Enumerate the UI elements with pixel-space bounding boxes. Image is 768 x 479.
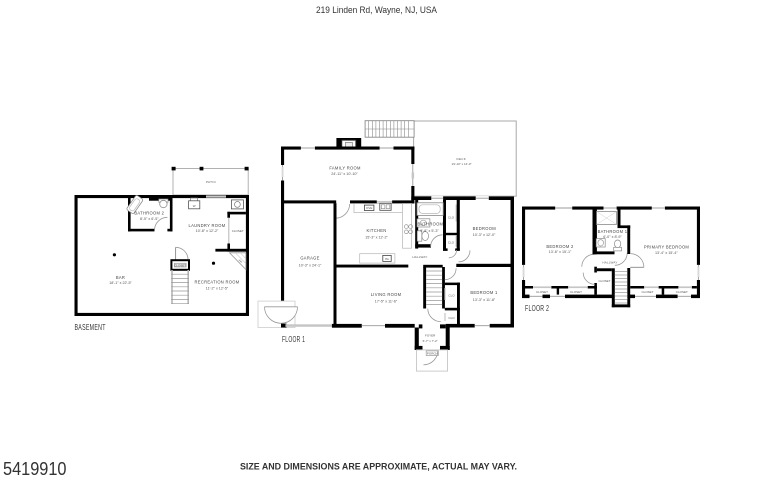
svg-text:DECK: DECK <box>457 157 467 161</box>
svg-text:BATHROOM: BATHROOM <box>418 222 444 227</box>
svg-text:CLOSET: CLOSET <box>598 279 610 283</box>
svg-text:BASEMENT: BASEMENT <box>75 322 106 332</box>
svg-text:HALLWAY: HALLWAY <box>602 260 617 264</box>
svg-text:RECREATION ROOM: RECREATION ROOM <box>195 280 240 285</box>
svg-text:PATIO: PATIO <box>206 180 216 184</box>
svg-text:FAMILY ROOM: FAMILY ROOM <box>329 166 361 171</box>
svg-text:KITCHEN: KITCHEN <box>366 228 386 233</box>
svg-text:BAR: BAR <box>116 275 125 280</box>
svg-text:CLOSET: CLOSET <box>676 290 688 294</box>
svg-text:11'-2" x 12'-5": 11'-2" x 12'-5" <box>206 287 229 291</box>
svg-text:CLO: CLO <box>448 215 455 219</box>
svg-text:10'-8" x 12'-2": 10'-8" x 12'-2" <box>196 229 219 233</box>
svg-text:CLOSET: CLOSET <box>232 229 244 233</box>
svg-text:17'-5" x 11'-6": 17'-5" x 11'-6" <box>375 299 398 303</box>
svg-text:13'-3" x 11'-8": 13'-3" x 11'-8" <box>473 298 496 302</box>
svg-text:10'-3" x 24'-1": 10'-3" x 24'-1" <box>299 263 322 267</box>
svg-text:6'-0" x 8'-9": 6'-0" x 8'-9" <box>603 235 622 239</box>
svg-text:FLOOR 2: FLOOR 2 <box>525 303 549 313</box>
svg-text:15'-3" x 12'-2": 15'-3" x 12'-2" <box>365 236 388 240</box>
svg-text:13'-6" x 15'-1": 13'-6" x 15'-1" <box>549 250 572 254</box>
svg-text:LIVING ROOM: LIVING ROOM <box>371 292 402 297</box>
svg-text:HALLWAY: HALLWAY <box>412 255 427 259</box>
svg-text:CLOSET: CLOSET <box>570 290 582 294</box>
svg-text:CLOSET: CLOSET <box>641 290 653 294</box>
svg-text:19'-10" x 14'-0": 19'-10" x 14'-0" <box>452 162 472 166</box>
svg-text:BATHROOM 2: BATHROOM 2 <box>134 211 164 216</box>
svg-text:ISL: ISL <box>385 257 390 261</box>
svg-text:LAUNDRY ROOM: LAUNDRY ROOM <box>189 223 226 228</box>
svg-text:10'-3" x 12'-0": 10'-3" x 12'-0" <box>473 233 496 237</box>
svg-text:SIZE AND DIMENSIONS ARE APPROX: SIZE AND DIMENSIONS ARE APPROXIMATE, ACT… <box>240 462 517 472</box>
svg-text:CLO: CLO <box>448 294 455 298</box>
svg-text:GARAGE: GARAGE <box>300 256 319 261</box>
svg-text:5419910: 5419910 <box>3 458 67 479</box>
svg-text:W: W <box>193 204 196 208</box>
svg-text:9'-8" x 5'-3": 9'-8" x 5'-3" <box>420 229 439 233</box>
svg-text:CLOSET: CLOSET <box>536 290 548 294</box>
svg-text:CLOSET: CLOSET <box>174 263 186 267</box>
svg-text:13'-4" x 15'-4": 13'-4" x 15'-4" <box>655 251 678 255</box>
svg-text:18'-1" x 22'-5": 18'-1" x 22'-5" <box>109 281 132 285</box>
svg-text:BEDROOM 2: BEDROOM 2 <box>546 244 574 249</box>
svg-text:BATHROOM 1: BATHROOM 1 <box>598 229 628 234</box>
svg-text:24'-11" x 10'-10": 24'-11" x 10'-10" <box>331 172 358 176</box>
svg-text:FLOOR 1: FLOOR 1 <box>282 334 305 344</box>
svg-text:CLO: CLO <box>448 240 455 244</box>
svg-text:OVE: OVE <box>366 206 372 210</box>
svg-text:BEDROOM: BEDROOM <box>473 226 497 231</box>
svg-text:PRIMARY BEDROOM: PRIMARY BEDROOM <box>644 245 690 250</box>
svg-text:8'-5" x 6'-5": 8'-5" x 6'-5" <box>140 217 159 221</box>
svg-text:PORCH: PORCH <box>427 352 438 356</box>
svg-text:CLO: CLO <box>448 316 455 320</box>
svg-text:FOYER: FOYER <box>425 334 436 338</box>
svg-text:BEDROOM 1: BEDROOM 1 <box>470 290 498 295</box>
svg-text:6'-7" x 7'-2": 6'-7" x 7'-2" <box>423 339 438 343</box>
svg-text:219 Linden Rd, Wayne, NJ, USA: 219 Linden Rd, Wayne, NJ, USA <box>316 5 438 15</box>
